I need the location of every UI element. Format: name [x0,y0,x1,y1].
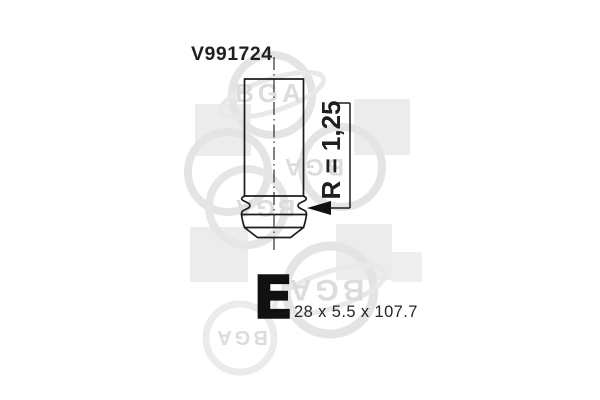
radius-dimension-label: R = 1,25 [316,95,342,205]
valve-type-letter: E [253,268,293,327]
part-number-label: V991724 [191,43,273,66]
valve-technical-drawing: BGA BGA BGA BGA BGA V991724 R = 1,25 E 2… [0,0,600,400]
valve-outline-drawing [0,0,600,400]
valve-size-label: 28 x 5.5 x 107.7 [294,303,418,322]
